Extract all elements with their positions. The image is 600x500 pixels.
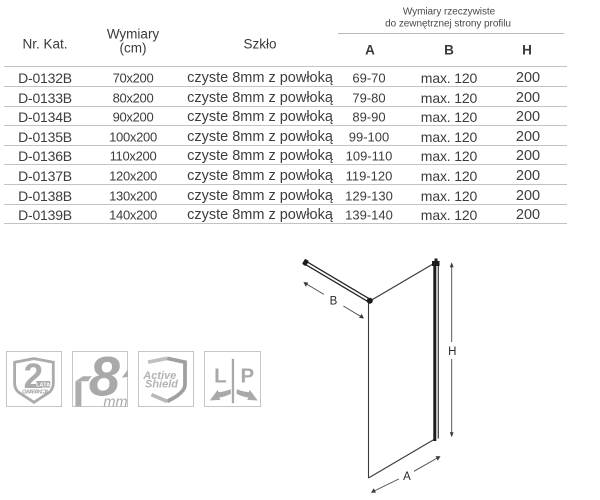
svg-text:Shield: Shield	[145, 379, 178, 391]
svg-text:LATA: LATA	[36, 383, 50, 389]
svg-text:A: A	[403, 471, 411, 483]
svg-text:H: H	[448, 346, 456, 358]
svg-text:B: B	[330, 295, 338, 307]
svg-text:GWARANCJA: GWARANCJA	[22, 390, 50, 396]
svg-text:P: P	[241, 364, 255, 387]
svg-text:L: L	[214, 364, 227, 387]
svg-text:mm: mm	[103, 395, 127, 408]
